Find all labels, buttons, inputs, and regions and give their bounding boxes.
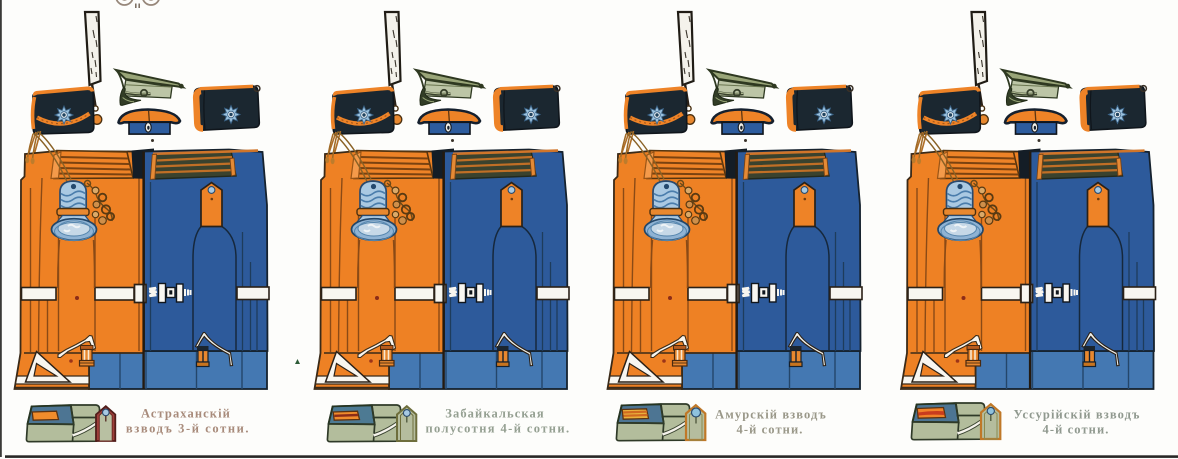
svg-text:Амурскій взводъ: Амурскій взводъ: [715, 408, 827, 422]
svg-text:4-й сотни.: 4-й сотни.: [1042, 423, 1109, 437]
svg-text:взводъ 3-й сотни.: взводъ 3-й сотни.: [126, 422, 250, 436]
svg-text:полусотня 4-й сотни.: полусотня 4-й сотни.: [425, 422, 570, 436]
svg-text:4-й сотни.: 4-й сотни.: [736, 423, 803, 437]
svg-text:Астраханскій: Астраханскій: [141, 407, 231, 421]
svg-text:Уссурійскій взводъ: Уссурійскій взводъ: [1014, 408, 1141, 422]
svg-text:Забайкальская: Забайкальская: [445, 407, 544, 421]
